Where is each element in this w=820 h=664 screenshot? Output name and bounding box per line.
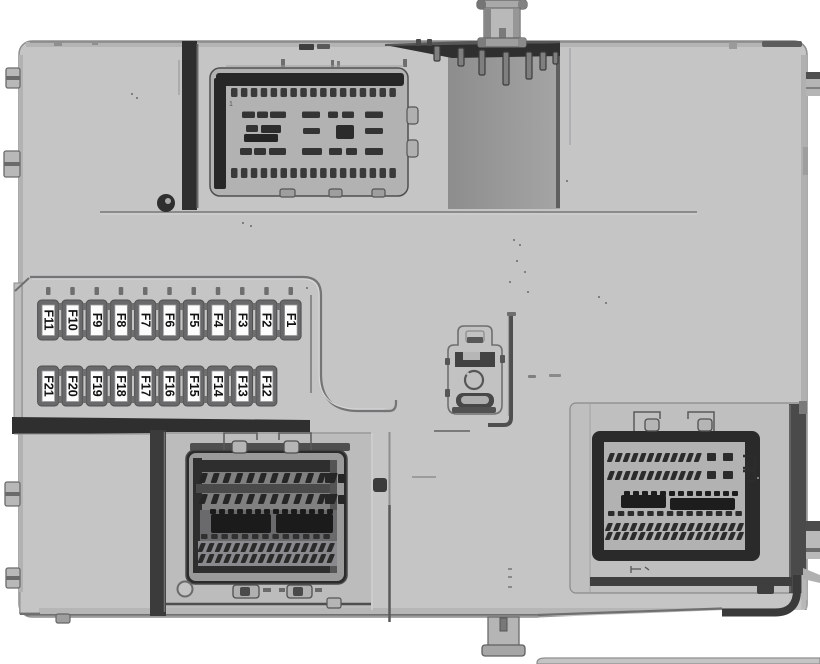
svg-text:F21: F21 (41, 375, 55, 397)
svg-text:F4: F4 (211, 313, 225, 328)
svg-text:F19: F19 (90, 375, 104, 397)
svg-text:F12: F12 (260, 375, 274, 397)
svg-text:F13: F13 (235, 375, 249, 397)
svg-text:F20: F20 (66, 375, 80, 397)
svg-text:F15: F15 (187, 375, 201, 397)
svg-text:F6: F6 (163, 313, 177, 328)
svg-text:F2: F2 (260, 313, 274, 328)
svg-text:F10: F10 (66, 309, 80, 331)
svg-text:F5: F5 (187, 313, 201, 328)
svg-text:F8: F8 (114, 313, 128, 328)
svg-text:F11: F11 (41, 310, 55, 331)
svg-text:F16: F16 (163, 375, 177, 397)
svg-text:1: 1 (229, 101, 233, 108)
svg-text:F7: F7 (138, 313, 152, 328)
svg-text:F3: F3 (235, 313, 249, 328)
svg-text:F1: F1 (284, 313, 298, 328)
svg-text:F18: F18 (114, 375, 128, 397)
svg-text:F17: F17 (138, 375, 152, 397)
svg-text:F14: F14 (211, 375, 225, 397)
svg-text:F9: F9 (90, 313, 104, 328)
